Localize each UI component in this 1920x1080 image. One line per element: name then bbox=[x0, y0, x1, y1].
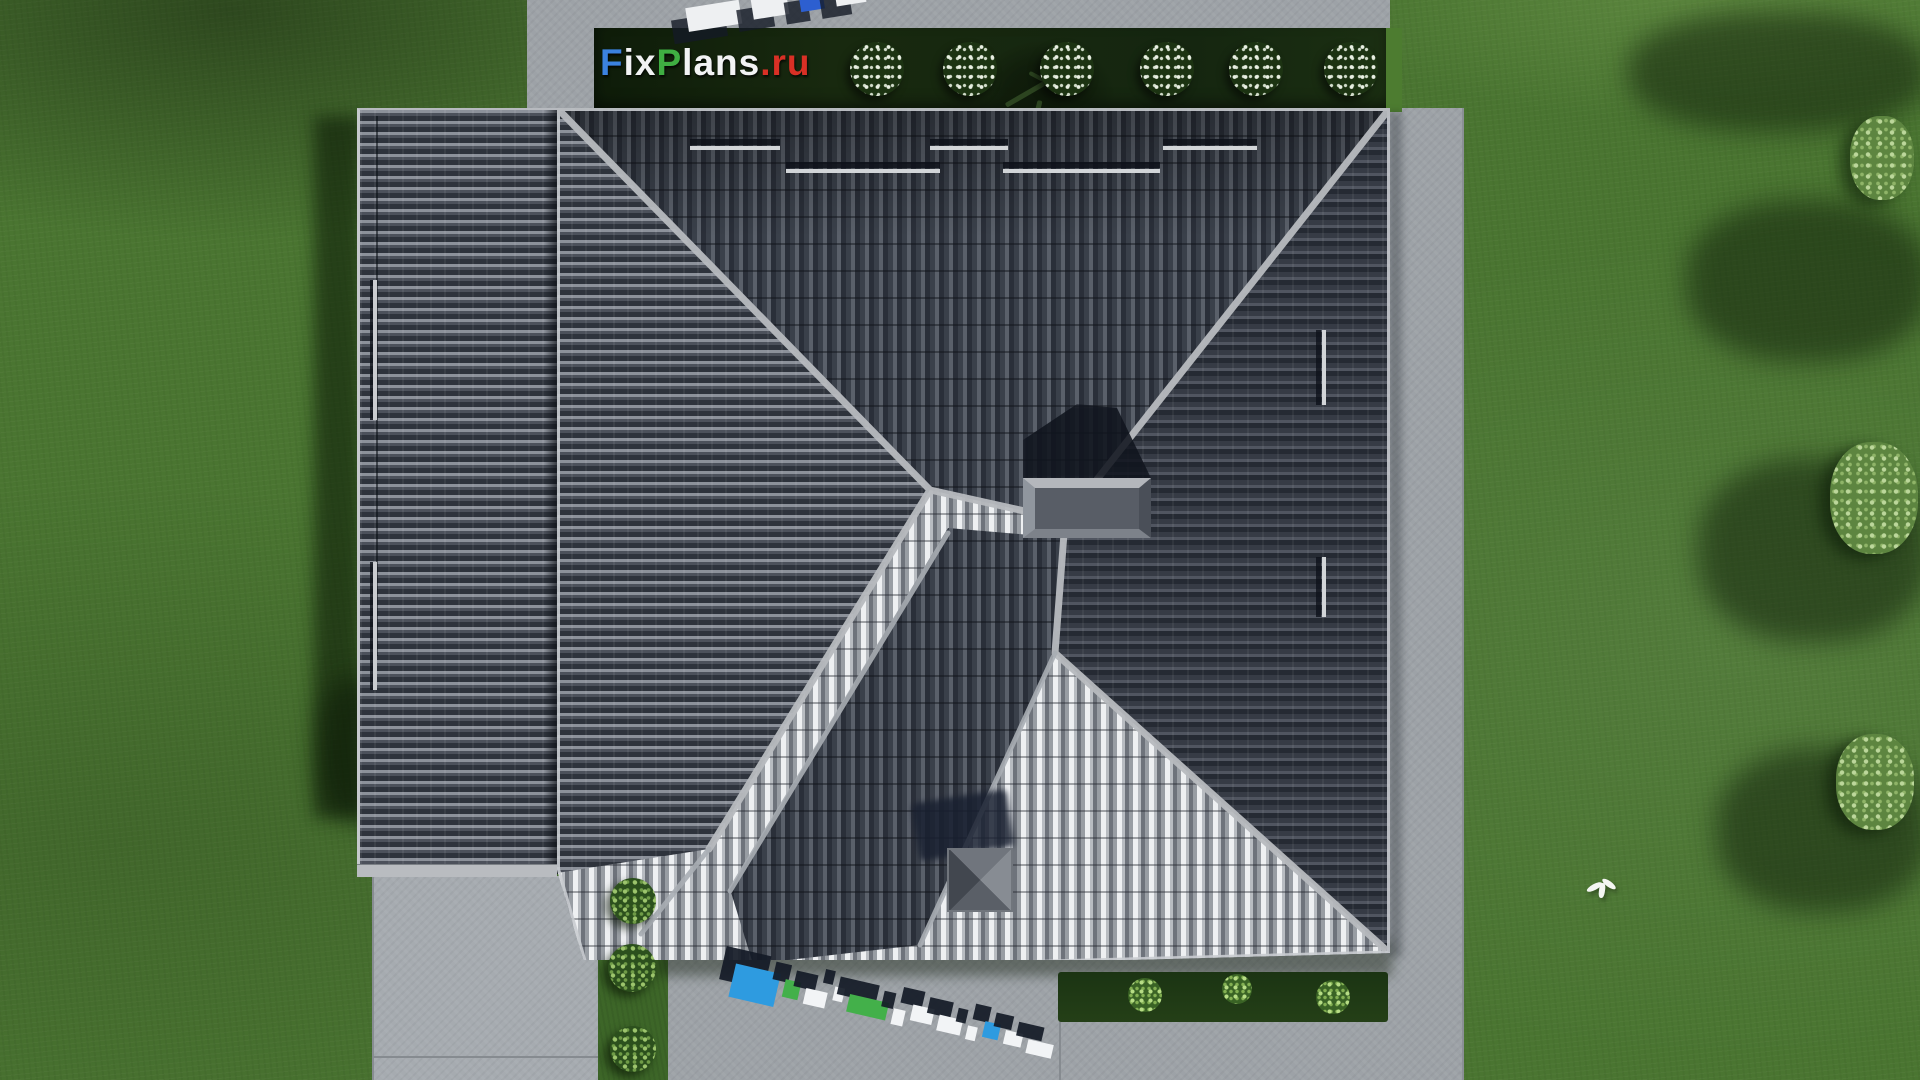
logo-letter: a bbox=[693, 42, 715, 83]
garden-bed-bush bbox=[1222, 974, 1252, 1004]
blossom-bush bbox=[1229, 42, 1283, 96]
divider-bush bbox=[610, 1026, 656, 1072]
watermark-3d-slab bbox=[782, 979, 802, 1000]
garden-bed-bush bbox=[1128, 978, 1162, 1012]
logo-letter: x bbox=[635, 42, 657, 83]
watermark-3d-slab bbox=[890, 1008, 905, 1026]
snow-guard-bar bbox=[930, 146, 1008, 150]
logo-letter: s bbox=[739, 42, 761, 83]
blossom-bush bbox=[1140, 42, 1194, 96]
watermark-3d-slab bbox=[982, 1021, 1001, 1040]
gutter bbox=[357, 864, 557, 877]
logo-letter: r bbox=[771, 42, 786, 83]
fixplans-logo-watermark: FixPlans.ru bbox=[600, 42, 811, 84]
main-hip-roof bbox=[557, 108, 1390, 960]
chimney bbox=[1023, 478, 1151, 538]
blossom-bush bbox=[943, 42, 997, 96]
snow-guard-bar bbox=[1003, 169, 1160, 173]
logo-letter: P bbox=[656, 42, 682, 83]
snow-guard-bar bbox=[1322, 557, 1326, 617]
divider-bush bbox=[608, 944, 656, 992]
roof-vent bbox=[949, 850, 1011, 910]
snow-guard-bar bbox=[690, 146, 780, 150]
watermark-3d-slab bbox=[803, 988, 828, 1009]
tree-shadow bbox=[1628, 12, 1920, 132]
snow-guard-bar bbox=[373, 562, 377, 690]
logo-letter: l bbox=[682, 42, 693, 83]
snow-guard-bar bbox=[1322, 330, 1326, 405]
garden-bed-bush bbox=[1316, 980, 1350, 1014]
bird-body bbox=[1598, 883, 1606, 899]
snow-guard-bar bbox=[373, 280, 377, 420]
watermark-3d-slab bbox=[832, 986, 845, 1002]
logo-letter: F bbox=[600, 42, 624, 83]
tree-shadow bbox=[1686, 200, 1920, 362]
logo-letter: . bbox=[760, 42, 771, 83]
snow-guard-bar bbox=[786, 169, 940, 173]
watermark-3d-slab bbox=[965, 1025, 978, 1041]
driveway bbox=[372, 876, 600, 1080]
watermark-3d-slab bbox=[798, 0, 825, 12]
watermark-3d-slab bbox=[936, 1015, 963, 1036]
watermark-3d-slab bbox=[846, 994, 889, 1021]
watermark-3d-slab bbox=[1025, 1039, 1053, 1058]
blossom-bush bbox=[1324, 42, 1378, 96]
lawn-tree-canopy bbox=[1836, 734, 1914, 830]
divider-bush bbox=[610, 878, 656, 924]
logo-letter: i bbox=[624, 42, 635, 83]
pavement-joint bbox=[372, 1056, 598, 1058]
logo-letter: u bbox=[787, 42, 811, 83]
logo-letter: n bbox=[715, 42, 739, 83]
left-roof-wing bbox=[357, 108, 560, 874]
lawn-tree-canopy bbox=[1850, 116, 1914, 200]
hedge-strip-end bbox=[1386, 28, 1402, 112]
eave-shadow-east bbox=[1388, 112, 1402, 957]
watermark-3d-slab bbox=[750, 0, 789, 20]
blossom-bush bbox=[850, 42, 904, 96]
blossom-bush bbox=[1040, 42, 1094, 96]
pavement-joint bbox=[1059, 1022, 1061, 1080]
aerial-roof-plan-render: FixPlans.ru bbox=[0, 0, 1920, 1080]
lawn-tree-canopy bbox=[1830, 442, 1918, 554]
snow-guard-bar bbox=[1163, 146, 1257, 150]
watermark-3d-slab bbox=[1003, 1030, 1024, 1048]
flying-bird bbox=[1586, 874, 1624, 904]
